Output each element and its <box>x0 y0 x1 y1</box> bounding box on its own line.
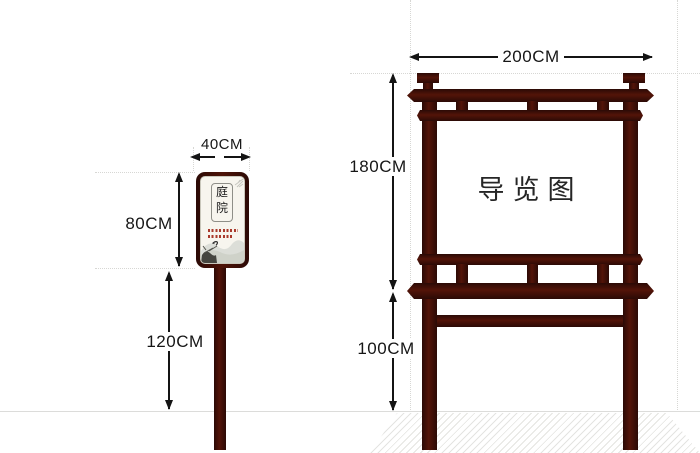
lower-rail-spacer <box>597 264 609 284</box>
down-arrowhead-icon <box>165 400 173 410</box>
guide-map-board-title: 导览图 <box>437 174 623 206</box>
down-arrowhead-icon <box>389 280 397 290</box>
large-sign-post-right <box>623 95 638 450</box>
up-arrowhead-icon <box>175 172 183 182</box>
signage-dimension-diagram: 40CM 80CM 120CM 庭 院 <box>0 0 700 453</box>
up-arrowhead-icon <box>389 73 397 83</box>
calligraphy-box: 庭 院 <box>211 183 233 222</box>
right-board-height-dim-line <box>392 75 394 289</box>
left-sign-width-label: 40CM <box>196 136 248 153</box>
left-sign-height-label: 80CM <box>122 214 176 233</box>
lower-rail-spacer <box>527 264 538 284</box>
calligraphy-char-top: 庭 <box>212 184 232 200</box>
left-arrowhead-icon <box>190 153 200 161</box>
post-cap-right <box>623 73 645 83</box>
mountain-painting <box>201 229 244 263</box>
left-pole-height-label: 120CM <box>145 332 205 351</box>
left-arrowhead-icon <box>409 53 419 61</box>
up-arrowhead-icon <box>165 271 173 281</box>
post-cap-left <box>417 73 439 83</box>
lower-rail-spacer <box>456 264 468 284</box>
top-level-guide-line <box>350 73 700 74</box>
right-board-height-label: 180CM <box>347 157 409 176</box>
down-arrowhead-icon <box>175 257 183 267</box>
extension-line-right <box>677 0 678 412</box>
ground-hatch <box>368 413 700 453</box>
right-leg-height-label: 100CM <box>355 339 417 358</box>
small-sign-frame: 庭 院 <box>196 172 249 268</box>
left-sign-width-arrow-line-left <box>198 156 215 158</box>
upper-rail-spacer <box>597 101 609 111</box>
right-arrowhead-icon <box>643 53 653 61</box>
left-sign-width-arrow-line-right <box>224 156 242 158</box>
small-sign-bottom-guide-line <box>95 268 195 269</box>
lower-bar <box>407 283 654 299</box>
upper-rail <box>417 110 643 121</box>
large-sign-post-left <box>422 95 437 450</box>
down-arrowhead-icon <box>389 401 397 411</box>
leg-crossbar <box>437 315 623 327</box>
upper-rail-spacer <box>456 101 468 111</box>
right-arrowhead-icon <box>241 153 251 161</box>
up-arrowhead-icon <box>389 292 397 302</box>
calligraphy-char-bottom: 院 <box>212 200 232 216</box>
right-sign-width-label: 200CM <box>498 47 564 66</box>
small-sign-pole <box>214 266 226 450</box>
left-sign-height-dim-line <box>178 174 180 266</box>
small-sign-panel: 庭 院 <box>200 176 245 264</box>
ground-line <box>0 411 700 412</box>
upper-rail-spacer <box>527 101 538 111</box>
